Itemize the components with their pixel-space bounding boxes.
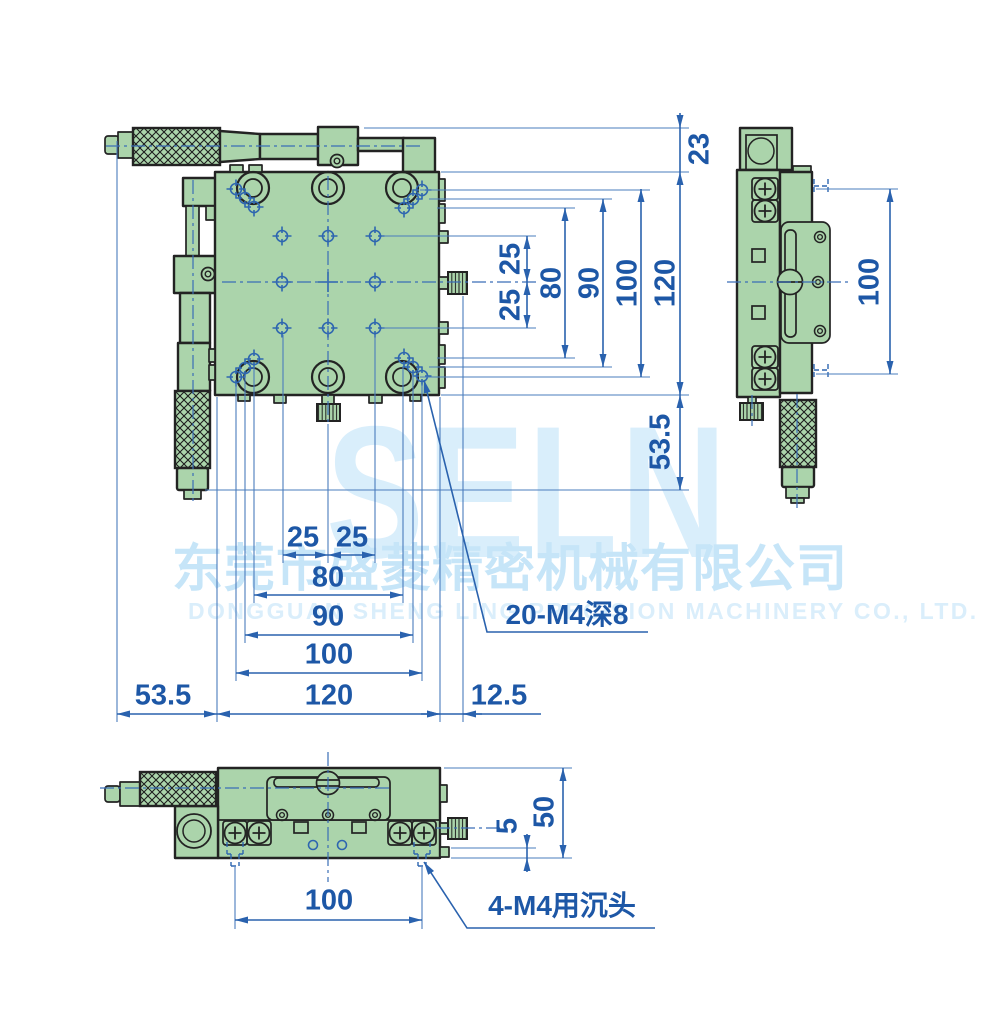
dim-front-right-25-lower: 25 <box>497 289 526 321</box>
dim-front-right-80: 80 <box>538 267 567 299</box>
x-clamp-knob <box>439 272 467 294</box>
dim-front-right-120: 120 <box>652 259 681 307</box>
dim-front-bottom-120: 120 <box>305 682 353 711</box>
dim-side-100: 100 <box>856 258 885 306</box>
technical-drawing-page: SELN 东莞市盛菱精密机械有限公司 DONGGUAN SHENG LING P… <box>0 0 1001 1031</box>
dim-front-top-offset: 23 <box>686 133 715 165</box>
dim-front-bottom-25-left: 25 <box>287 524 319 553</box>
dim-front-right-53-5: 53.5 <box>647 414 676 470</box>
dim-front-bottom-80: 80 <box>312 564 344 593</box>
label-tapped-holes: 20-M4深8 <box>506 601 629 629</box>
x-axis-micrometer <box>105 127 435 172</box>
dim-bottom-view-100: 100 <box>305 887 353 916</box>
label-counterbore-holes: 4-M4用沉头 <box>488 892 636 920</box>
side-view <box>727 128 848 508</box>
dim-front-bottom-12-5: 12.5 <box>471 682 527 711</box>
y-axis-micrometer <box>174 178 217 499</box>
bottom-view <box>100 752 503 882</box>
dim-front-bottom-100: 100 <box>305 641 353 670</box>
dim-front-right-90: 90 <box>576 267 605 299</box>
front-view <box>105 127 537 502</box>
dim-front-bottom-25-right: 25 <box>336 524 368 553</box>
dim-bottom-view-5: 5 <box>494 818 523 834</box>
dim-front-right-100: 100 <box>614 259 643 307</box>
dim-front-bottom-90: 90 <box>312 603 344 632</box>
stage-technical-drawing <box>0 0 1001 1031</box>
dim-front-right-25-upper: 25 <box>497 243 526 275</box>
dim-front-bottom-53-5: 53.5 <box>135 682 191 711</box>
dim-bottom-view-50: 50 <box>531 796 560 828</box>
